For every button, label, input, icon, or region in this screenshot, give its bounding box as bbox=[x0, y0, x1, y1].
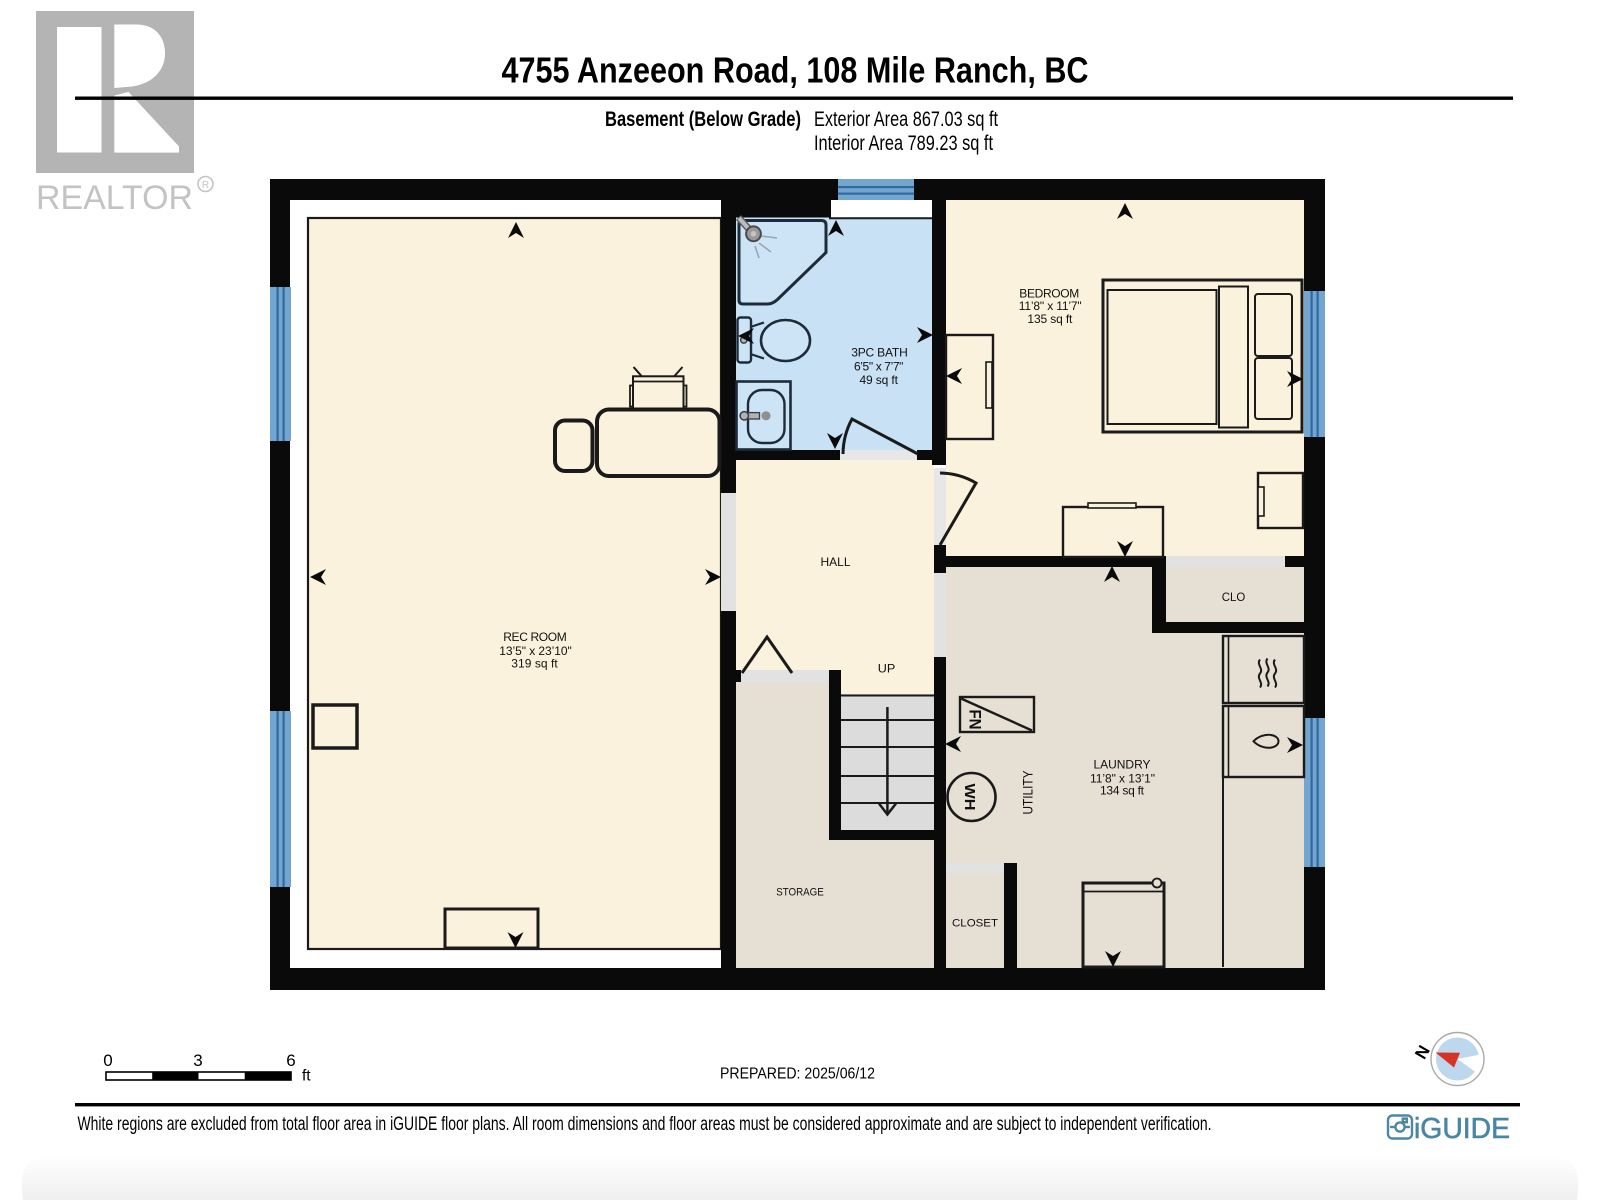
svg-text:Exterior Area 867.03 sq ft: Exterior Area 867.03 sq ft bbox=[814, 108, 998, 131]
svg-text:STORAGE: STORAGE bbox=[776, 887, 824, 899]
svg-text:iGUIDE: iGUIDE bbox=[1414, 1113, 1510, 1145]
svg-text:4755 Anzeeon Road, 108 Mile Ra: 4755 Anzeeon Road, 108 Mile Ranch, BC bbox=[502, 50, 1089, 91]
svg-text:3: 3 bbox=[193, 1051, 202, 1070]
svg-text:ft: ft bbox=[302, 1068, 311, 1085]
svg-text:UTILITY: UTILITY bbox=[1021, 771, 1036, 815]
svg-text:PREPARED: 2025/06/12: PREPARED: 2025/06/12 bbox=[720, 1066, 875, 1083]
svg-text:3PC BATH: 3PC BATH bbox=[851, 346, 908, 360]
svg-text:Interior Area 789.23 sq ft: Interior Area 789.23 sq ft bbox=[814, 132, 993, 155]
svg-text:LAUNDRY: LAUNDRY bbox=[1094, 758, 1151, 772]
svg-text:Basement (Below Grade): Basement (Below Grade) bbox=[605, 108, 801, 131]
svg-text:HALL: HALL bbox=[821, 555, 851, 569]
svg-text:UP: UP bbox=[878, 662, 896, 676]
svg-text:CLOSET: CLOSET bbox=[952, 918, 998, 930]
svg-text:49 sq ft: 49 sq ft bbox=[859, 373, 898, 387]
svg-text:White regions are excluded fro: White regions are excluded from total fl… bbox=[78, 1114, 1212, 1135]
svg-text:REALTOR: REALTOR bbox=[36, 179, 193, 217]
svg-text:0: 0 bbox=[103, 1051, 112, 1070]
svg-text:CLO: CLO bbox=[1222, 592, 1246, 604]
svg-text:11’8" x 11’7": 11’8" x 11’7" bbox=[1019, 299, 1082, 313]
svg-text:134 sq ft: 134 sq ft bbox=[1100, 784, 1145, 798]
svg-text:WH: WH bbox=[961, 784, 978, 811]
svg-text:REC ROOM: REC ROOM bbox=[503, 630, 567, 644]
svg-text:6: 6 bbox=[286, 1051, 295, 1070]
svg-text:135 sq ft: 135 sq ft bbox=[1027, 312, 1073, 326]
svg-text:319 sq ft: 319 sq ft bbox=[511, 657, 558, 671]
svg-text:FN: FN bbox=[966, 710, 985, 730]
svg-text:R: R bbox=[202, 180, 209, 191]
svg-text:6’5" x 7’7": 6’5" x 7’7" bbox=[854, 360, 904, 374]
